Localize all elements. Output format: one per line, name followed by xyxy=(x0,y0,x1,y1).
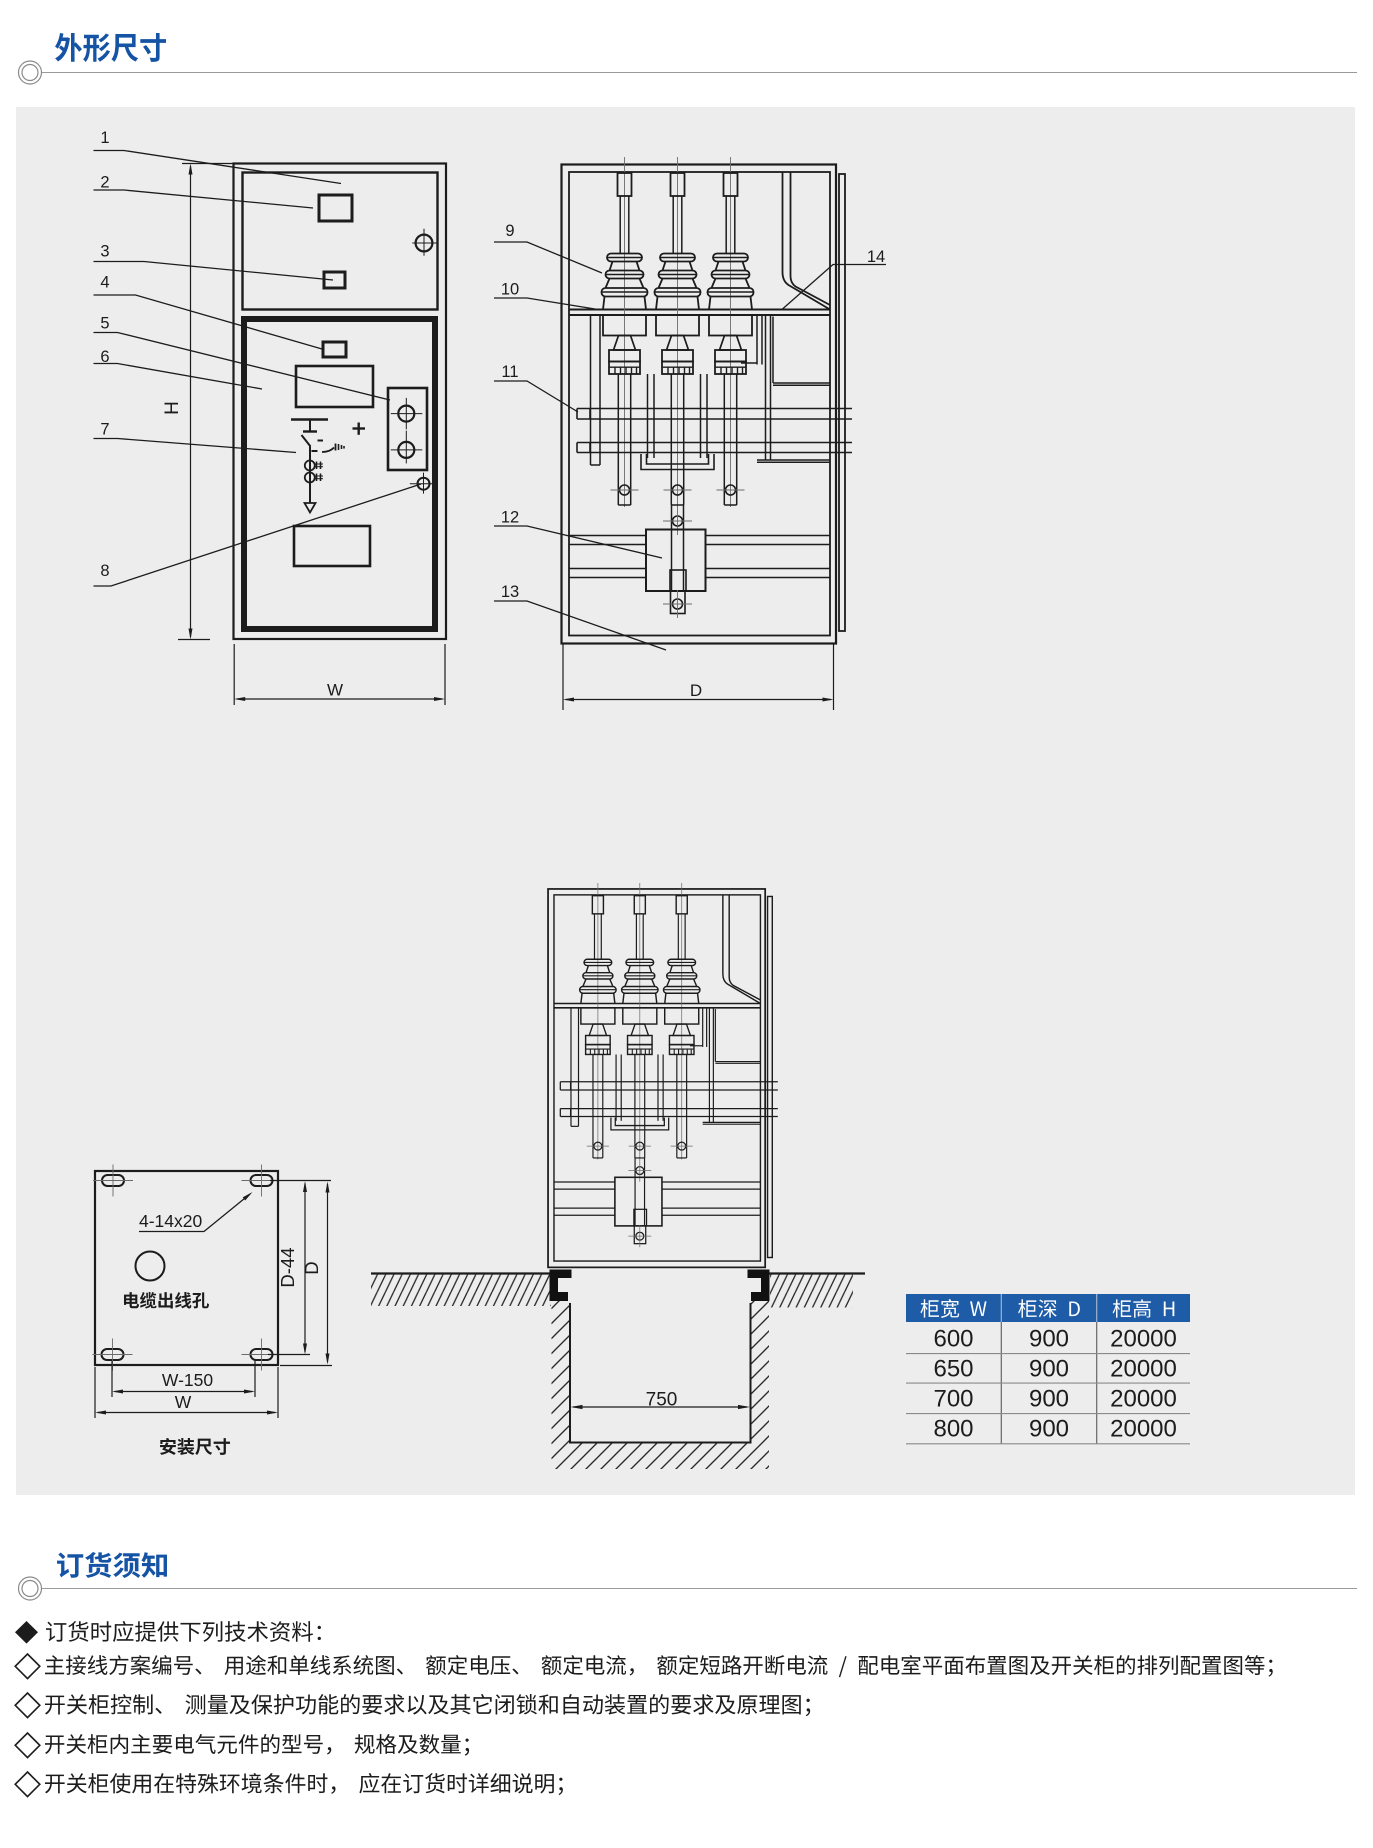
svg-text:12: 12 xyxy=(501,509,519,527)
svg-text:10: 10 xyxy=(501,281,519,299)
svg-text:2: 2 xyxy=(100,174,109,192)
svg-text:750: 750 xyxy=(646,1390,678,1411)
svg-text:W-150: W-150 xyxy=(162,1370,213,1390)
svg-text:8: 8 xyxy=(100,562,109,580)
svg-text:11: 11 xyxy=(501,363,518,381)
svg-text:7: 7 xyxy=(100,421,109,439)
svg-text:900: 900 xyxy=(1029,1416,1069,1443)
svg-text:20000: 20000 xyxy=(1110,1355,1177,1382)
svg-text:650: 650 xyxy=(933,1355,973,1382)
svg-text:900: 900 xyxy=(1029,1325,1069,1352)
svg-text:W: W xyxy=(327,681,343,700)
svg-text:D: D xyxy=(690,681,702,700)
svg-text:900: 900 xyxy=(1029,1385,1069,1412)
svg-text:20000: 20000 xyxy=(1110,1325,1177,1352)
svg-text:900: 900 xyxy=(1029,1355,1069,1382)
svg-text:5: 5 xyxy=(100,315,109,333)
svg-text:H: H xyxy=(162,401,183,415)
svg-text:800: 800 xyxy=(933,1416,973,1443)
svg-text:14: 14 xyxy=(867,248,885,266)
svg-text:1: 1 xyxy=(100,129,109,147)
svg-text:4-14x20: 4-14x20 xyxy=(139,1211,203,1231)
svg-text:20000: 20000 xyxy=(1110,1385,1177,1412)
svg-text:700: 700 xyxy=(933,1385,973,1412)
svg-text:600: 600 xyxy=(933,1325,973,1352)
svg-text:D: D xyxy=(301,1261,322,1274)
svg-text:D-44: D-44 xyxy=(277,1247,298,1287)
svg-text:13: 13 xyxy=(501,583,519,601)
svg-text:4: 4 xyxy=(100,274,109,292)
svg-text:20000: 20000 xyxy=(1110,1416,1177,1443)
svg-text:W: W xyxy=(175,1392,192,1412)
svg-text:9: 9 xyxy=(505,222,514,240)
svg-text:3: 3 xyxy=(100,243,109,261)
